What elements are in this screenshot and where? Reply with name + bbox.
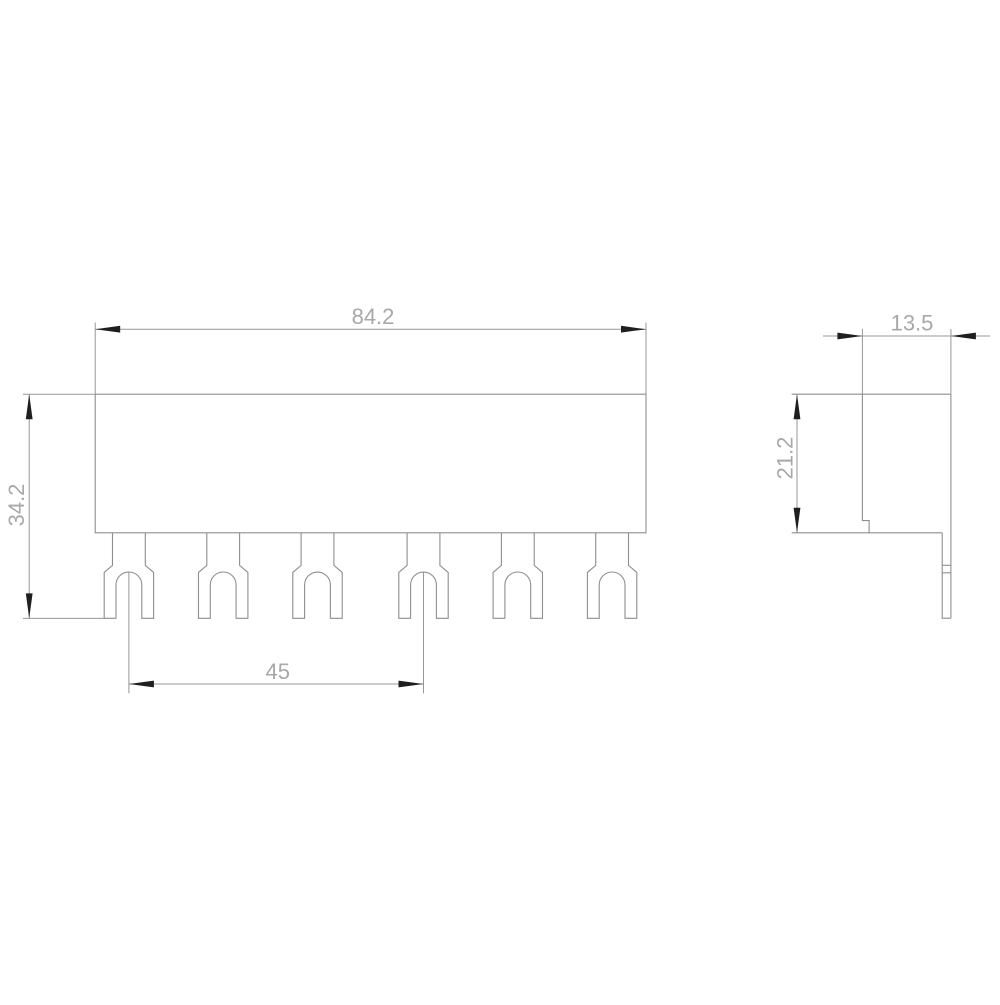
svg-text:34.2: 34.2: [4, 484, 29, 527]
svg-text:21.2: 21.2: [772, 437, 797, 480]
svg-text:84.2: 84.2: [352, 304, 395, 329]
svg-text:45: 45: [266, 659, 290, 684]
svg-text:13.5: 13.5: [891, 311, 934, 336]
